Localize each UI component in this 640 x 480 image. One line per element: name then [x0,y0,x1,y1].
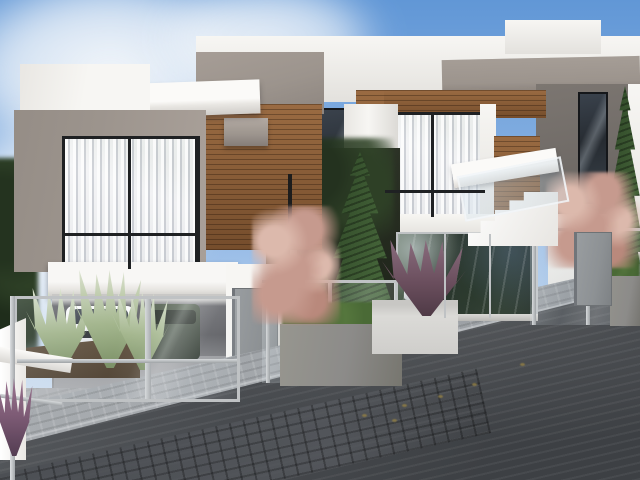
leaf-litter [472,383,477,386]
window-rail [385,190,485,193]
window-mullion [128,139,131,269]
leaf-litter [402,404,407,407]
leaf-litter [392,419,397,422]
pink-ornamental-plant [252,206,340,324]
left-house-floor-slab [48,262,238,298]
gate-rail [17,359,237,363]
pedestrian-door-right [574,232,612,306]
gate-mullion [444,234,446,318]
left-house-window [62,136,200,272]
leaf-litter [438,395,443,398]
carport-glass-gate [14,296,240,402]
left-house-accent-slab [224,118,268,146]
right-house-parapet-box [505,20,601,54]
architectural-render-scene [0,0,640,480]
gate-mullion [145,299,151,399]
window-rail [65,233,197,236]
gate-mullion [489,234,491,318]
leaf-litter [520,363,525,366]
window-mullion [431,115,434,217]
leaf-litter [362,414,367,417]
gray-planter-box [610,276,640,326]
